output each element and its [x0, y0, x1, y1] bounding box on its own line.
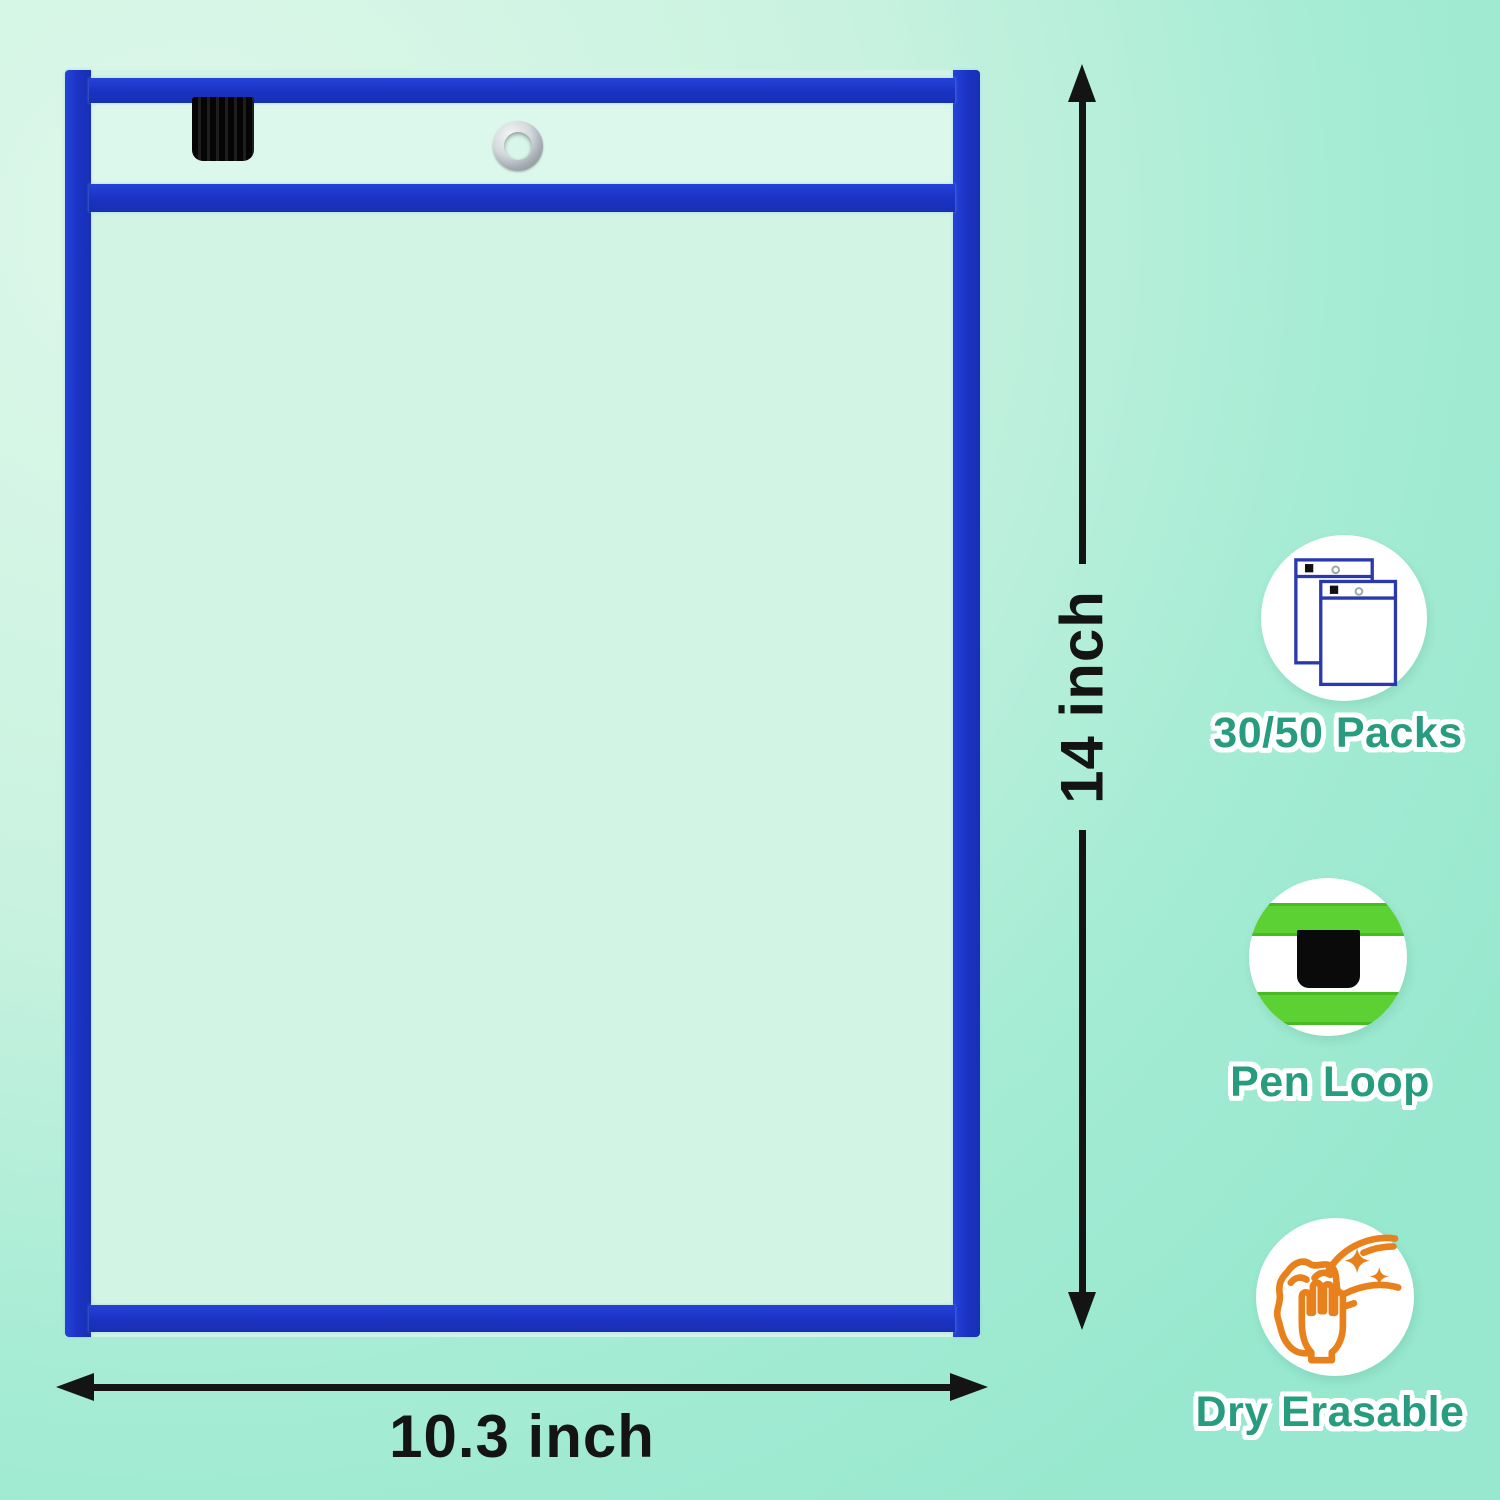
pockets-stack-icon — [1261, 535, 1427, 701]
width-label: 10.3 inch — [56, 1402, 988, 1471]
width-dimension-line — [94, 1384, 950, 1391]
pocket-border-left — [65, 70, 91, 1337]
feature-dry-erasable — [1256, 1218, 1414, 1376]
arrow-left-icon — [56, 1373, 94, 1401]
pocket-border-bottom — [89, 1305, 955, 1332]
grommet-eyelet-icon — [493, 121, 543, 171]
feature-pen-loop-label: Pen Loop — [1180, 1058, 1480, 1107]
feature-dry-erasable-label: Dry Erasable — [1180, 1388, 1480, 1437]
arrow-up-icon — [1068, 64, 1096, 102]
feature-packs — [1261, 535, 1427, 701]
pocket-header-divider — [89, 184, 955, 212]
width-dimension — [56, 1372, 988, 1402]
product-image: 14 inch 10.3 inch 30/50 Packs — [0, 0, 1500, 1500]
height-dimension-line — [1079, 102, 1086, 564]
pen-loop-tab — [192, 97, 254, 161]
dry-erase-wipe-icon — [1256, 1218, 1414, 1376]
arrow-down-icon — [1068, 1292, 1096, 1330]
height-label: 14 inch — [1048, 590, 1117, 804]
dry-erase-pocket — [65, 70, 980, 1337]
height-dimension: 14 inch — [1059, 64, 1105, 1330]
pocket-border-right — [953, 70, 980, 1337]
elastic-band-bottom — [1249, 992, 1407, 1025]
height-dimension-line — [1079, 830, 1086, 1292]
pen-loop-black-tab — [1297, 930, 1360, 988]
feature-pen-loop — [1249, 878, 1407, 1036]
arrow-right-icon — [950, 1373, 988, 1401]
feature-packs-label: 30/50 Packs — [1188, 709, 1488, 758]
